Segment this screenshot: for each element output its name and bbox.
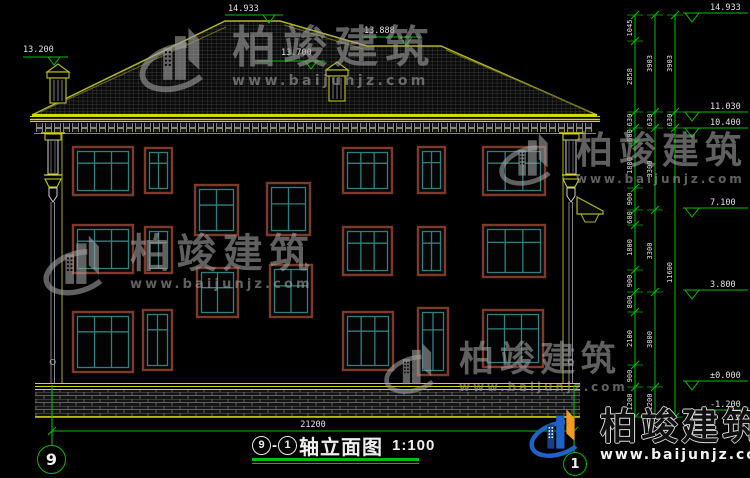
svg-text:1800: 1800 [626, 157, 634, 174]
svg-text:2100: 2100 [626, 330, 634, 347]
window [197, 268, 238, 317]
svg-text:10.400: 10.400 [710, 118, 741, 128]
window [343, 148, 392, 193]
svg-text:800: 800 [626, 296, 634, 309]
svg-text:3903: 3903 [646, 55, 654, 72]
baijun-building-icon [528, 408, 592, 464]
svg-text:900: 900 [626, 193, 634, 206]
window [343, 312, 393, 370]
window [267, 183, 310, 235]
axis-bubble-9: 9 [37, 445, 66, 474]
elevation-marker [683, 381, 748, 390]
window [195, 185, 238, 235]
drawing-title: 9 - 1 轴立面图 1:100 [252, 433, 435, 457]
window [483, 225, 545, 277]
elevation-marker [683, 208, 748, 217]
window [73, 147, 133, 195]
elevation-marker [683, 128, 748, 137]
svg-text:630: 630 [646, 114, 654, 127]
svg-text:11.030: 11.030 [710, 102, 741, 112]
svg-text:630: 630 [626, 114, 634, 127]
brand-url: www.baijunjz.com [600, 447, 750, 463]
svg-text:600: 600 [626, 129, 634, 142]
elevation-marker [683, 13, 748, 22]
svg-text:900: 900 [626, 370, 634, 383]
drop-finial [567, 188, 575, 202]
svg-text:1800: 1800 [626, 239, 634, 256]
title-underline [252, 458, 419, 461]
svg-text:21200: 21200 [300, 420, 326, 430]
axis-ref-end: 1 [278, 436, 297, 455]
drawing-scale: 1:100 [392, 437, 435, 454]
window [343, 227, 392, 275]
svg-text:2858: 2858 [626, 68, 634, 85]
dentil-band [36, 123, 594, 132]
svg-text:1045: 1045 [626, 20, 634, 37]
svg-text:13.200: 13.200 [23, 45, 54, 55]
svg-text:3800: 3800 [646, 331, 654, 348]
svg-text:3300: 3300 [646, 161, 654, 178]
elevation-marker [683, 290, 748, 299]
svg-text:13.700: 13.700 [281, 48, 312, 58]
axis-bubble-label: 9 [46, 450, 57, 469]
svg-text:7.100: 7.100 [710, 198, 736, 208]
window [418, 308, 448, 375]
elevation-marker [362, 37, 420, 45]
window [270, 265, 312, 317]
svg-text:±0.000: ±0.000 [710, 371, 741, 381]
window [483, 147, 545, 195]
elevation-drawing-canvas: 1045285863060018009006001800900800210090… [0, 0, 750, 478]
elevation-marker [23, 57, 68, 65]
drop-finial [49, 188, 57, 202]
svg-text:600: 600 [626, 211, 634, 224]
drawing-title-text: 轴立面图 [299, 431, 383, 460]
axis-ref-start: 9 [252, 436, 271, 455]
window [483, 310, 543, 367]
svg-text:13.888: 13.888 [364, 26, 395, 36]
svg-text:3903: 3903 [666, 55, 674, 72]
porch-roof [577, 197, 603, 222]
window [145, 148, 172, 193]
svg-text:14.933: 14.933 [710, 3, 741, 13]
svg-text:11600: 11600 [666, 262, 674, 283]
svg-text:3300: 3300 [646, 243, 654, 260]
cornice [30, 117, 600, 134]
roof [32, 21, 597, 115]
window [145, 227, 172, 273]
brick-plinth [35, 384, 580, 418]
window [418, 147, 445, 193]
brand-name: 柏竣建筑 [600, 408, 750, 445]
chimney [326, 62, 348, 101]
baijun-logo: 柏竣建筑 www.baijunjz.com [528, 408, 750, 464]
window [143, 310, 172, 370]
chimney [47, 64, 69, 103]
window [418, 227, 445, 275]
window [73, 225, 133, 273]
title-underline [252, 463, 419, 464]
axis-ref-separator: - [272, 437, 277, 454]
window [73, 312, 133, 372]
svg-text:14.933: 14.933 [228, 4, 259, 14]
baijun-building-icon [528, 408, 592, 460]
svg-text:900: 900 [626, 275, 634, 288]
svg-text:630: 630 [666, 114, 674, 127]
svg-text:3.800: 3.800 [710, 280, 736, 290]
